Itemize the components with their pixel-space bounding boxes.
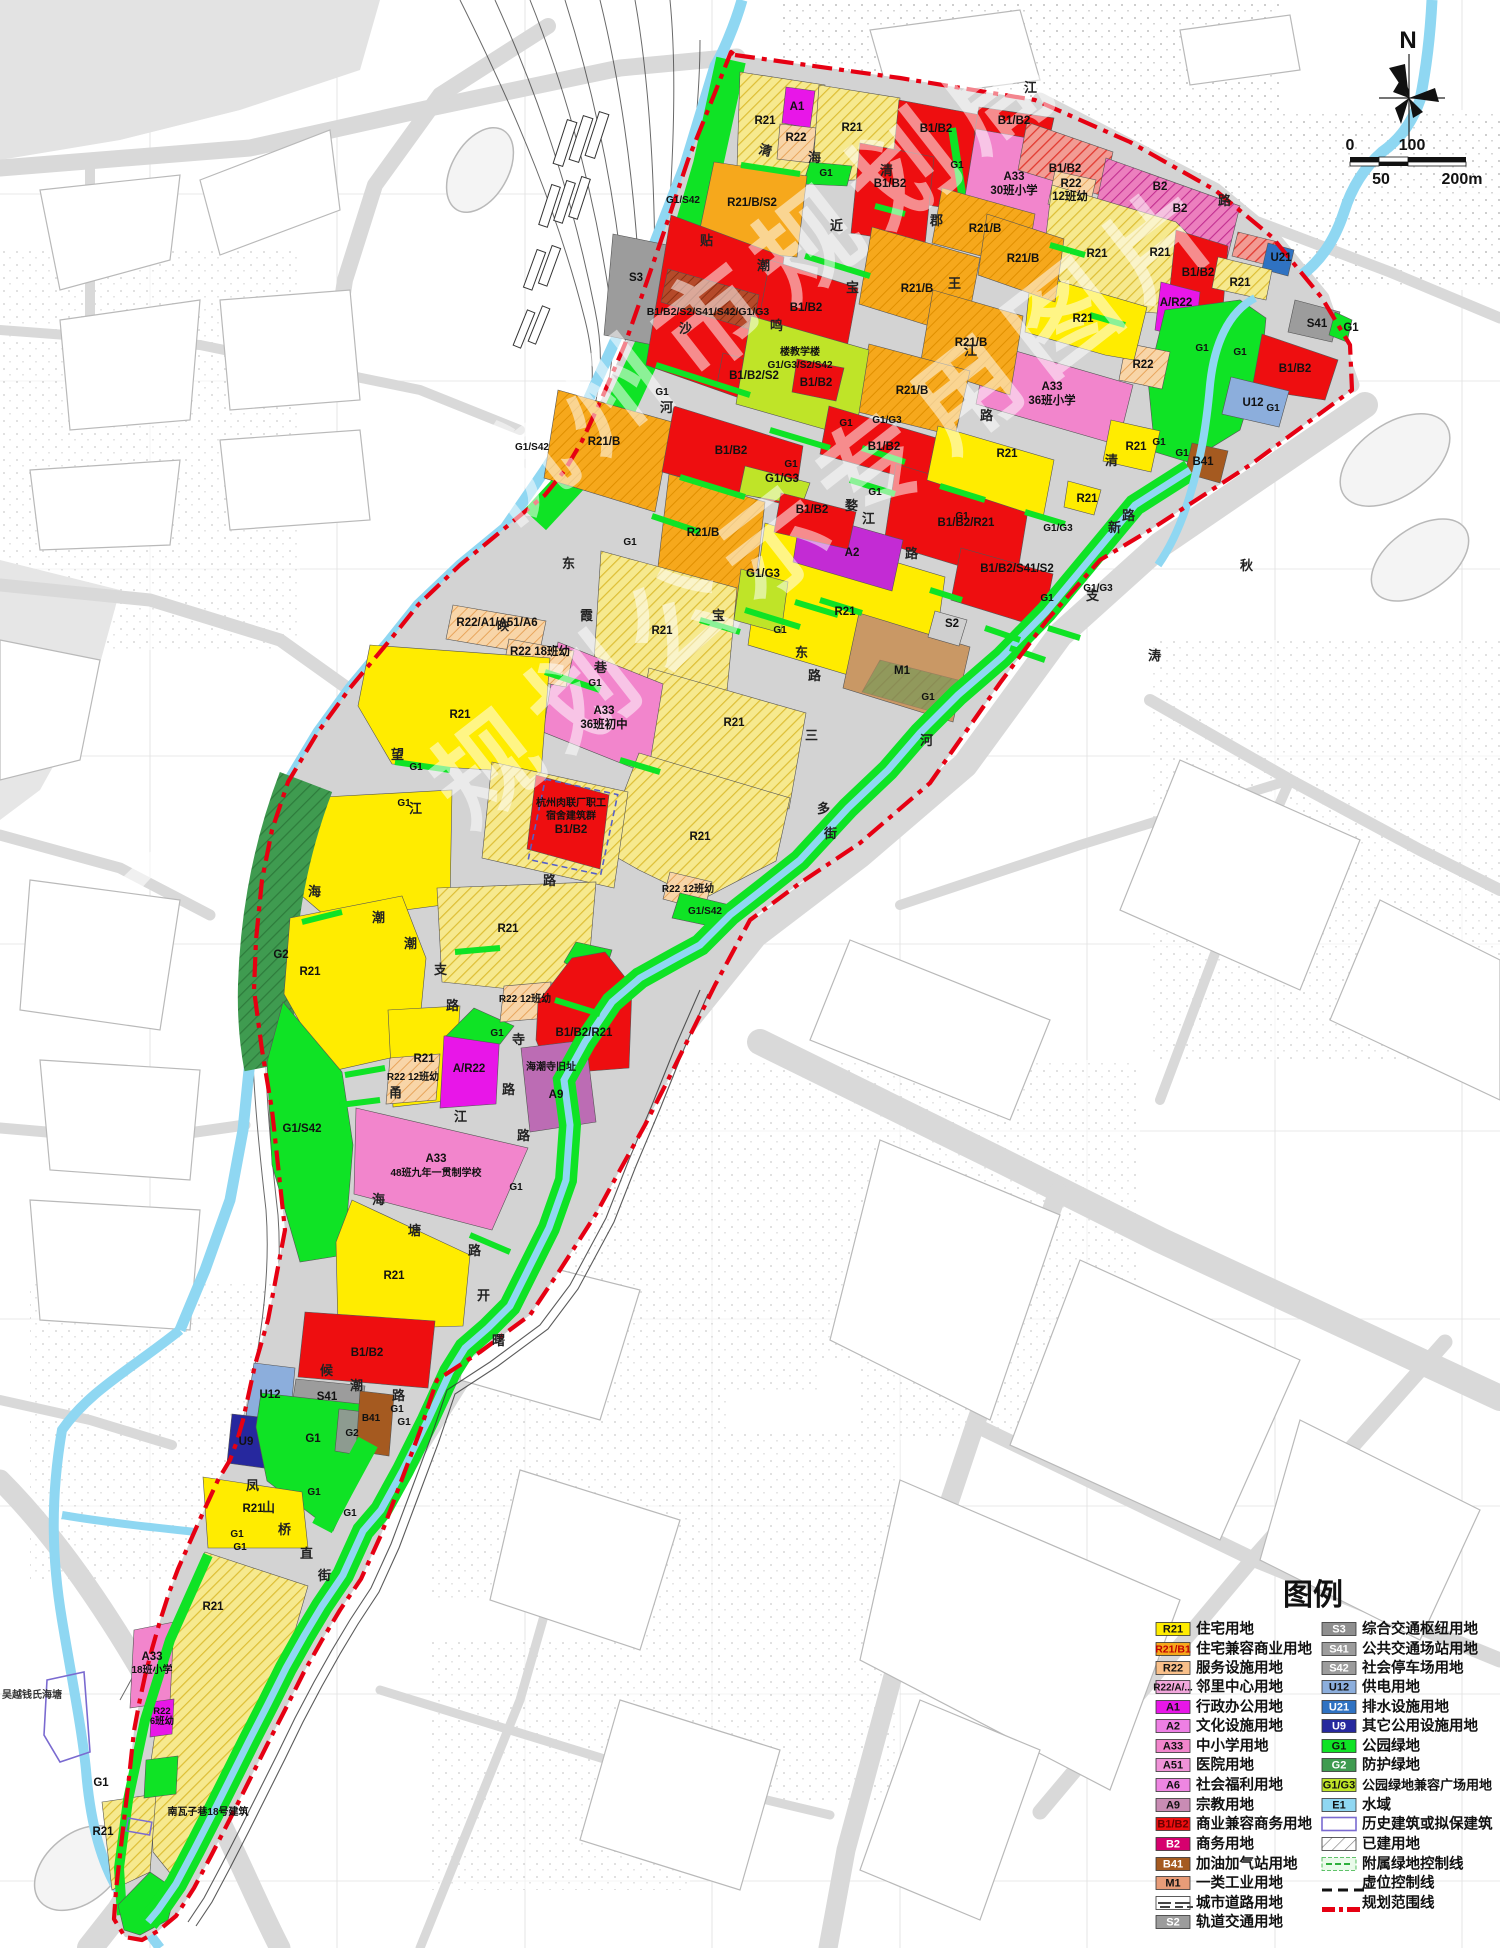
svg-text:婺: 婺	[844, 498, 859, 513]
svg-text:36班初中: 36班初中	[580, 717, 627, 731]
svg-text:清: 清	[880, 163, 893, 178]
svg-text:U21: U21	[1270, 252, 1292, 264]
svg-text:社会停车场用地: 社会停车场用地	[1361, 1659, 1464, 1677]
svg-text:30班小学: 30班小学	[990, 183, 1038, 197]
svg-text:R22 18班幼: R22 18班幼	[510, 644, 570, 658]
svg-text:涛: 涛	[1148, 648, 1161, 663]
svg-text:R21/B: R21/B	[687, 527, 720, 539]
svg-text:多: 多	[817, 801, 830, 816]
svg-text:江: 江	[1024, 80, 1037, 95]
svg-text:G2: G2	[345, 1428, 359, 1439]
svg-text:G1/S42: G1/S42	[688, 906, 722, 917]
svg-text:桥: 桥	[278, 1522, 292, 1537]
svg-text:G1: G1	[868, 487, 882, 498]
svg-text:G1: G1	[1266, 403, 1280, 414]
svg-text:100: 100	[1399, 137, 1426, 154]
svg-text:商业兼容商务用地: 商业兼容商务用地	[1196, 1815, 1312, 1833]
svg-text:住宅兼容商业用地: 住宅兼容商业用地	[1196, 1640, 1312, 1658]
svg-text:公园绿地兼容广场用地: 公园绿地兼容广场用地	[1362, 1778, 1492, 1793]
svg-text:U12: U12	[1329, 1682, 1349, 1694]
svg-text:G1/G3: G1/G3	[765, 473, 799, 485]
svg-text:6班幼: 6班幼	[150, 1715, 174, 1727]
svg-text:S2: S2	[945, 618, 959, 630]
svg-text:R22: R22	[785, 132, 806, 144]
svg-text:36班小学: 36班小学	[1028, 393, 1076, 407]
svg-text:A9: A9	[549, 1089, 564, 1101]
svg-text:塘: 塘	[408, 1223, 421, 1238]
svg-text:R21/B/S2: R21/B/S2	[727, 197, 777, 209]
svg-text:潮: 潮	[757, 258, 770, 273]
svg-text:A33: A33	[1163, 1741, 1183, 1753]
svg-text:R21: R21	[449, 709, 471, 721]
svg-text:G2: G2	[273, 949, 288, 961]
svg-text:路: 路	[1218, 193, 1232, 208]
svg-text:住宅用地: 住宅用地	[1196, 1620, 1254, 1638]
svg-text:R21/B: R21/B	[1007, 253, 1040, 265]
svg-text:A6: A6	[1166, 1780, 1180, 1792]
svg-text:R21: R21	[651, 625, 673, 637]
svg-text:R21: R21	[1163, 1624, 1183, 1636]
svg-text:排水设施用地: 排水设施用地	[1362, 1698, 1449, 1716]
svg-text:G1: G1	[839, 418, 853, 429]
svg-text:鸣: 鸣	[770, 318, 783, 333]
svg-text:R22: R22	[1132, 359, 1153, 371]
svg-text:霞: 霞	[580, 608, 594, 623]
svg-text:邻里中心用地: 邻里中心用地	[1196, 1678, 1283, 1696]
svg-text:G1/G3/S2/S42: G1/G3/S2/S42	[767, 360, 832, 371]
svg-text:R21: R21	[497, 923, 519, 935]
svg-text:行政办公用地: 行政办公用地	[1195, 1698, 1283, 1716]
svg-text:S3: S3	[629, 272, 643, 284]
svg-text:沙: 沙	[679, 321, 692, 336]
svg-text:A1: A1	[1166, 1702, 1180, 1714]
svg-text:G1: G1	[93, 1777, 109, 1789]
svg-text:G1: G1	[1175, 448, 1189, 459]
svg-text:12班幼: 12班幼	[1052, 189, 1088, 203]
svg-text:路: 路	[502, 1082, 516, 1097]
svg-text:路: 路	[543, 873, 557, 888]
svg-text:G1/G3: G1/G3	[872, 415, 902, 426]
svg-text:B41: B41	[362, 1413, 381, 1424]
svg-text:海: 海	[308, 884, 321, 899]
svg-text:G1/G3: G1/G3	[746, 568, 780, 580]
svg-text:东: 东	[562, 556, 575, 571]
svg-text:海潮寺旧址: 海潮寺旧址	[526, 1060, 576, 1073]
svg-text:A51: A51	[1163, 1760, 1183, 1772]
svg-text:虚位控制线: 虚位控制线	[1362, 1874, 1435, 1892]
svg-text:N: N	[1399, 27, 1416, 54]
svg-text:G1: G1	[230, 1529, 244, 1540]
svg-text:新: 新	[1108, 520, 1121, 535]
svg-text:寺: 寺	[512, 1032, 525, 1047]
svg-text:规划范围线: 规划范围线	[1362, 1894, 1435, 1912]
svg-text:A33: A33	[1041, 381, 1062, 393]
svg-text:G1: G1	[950, 160, 964, 171]
svg-text:东: 东	[795, 645, 808, 660]
svg-text:G1: G1	[1343, 322, 1359, 334]
svg-text:路: 路	[905, 546, 919, 561]
svg-text:G1: G1	[233, 1542, 247, 1553]
svg-text:U12: U12	[1242, 397, 1263, 409]
svg-text:S41: S41	[1329, 1644, 1349, 1656]
svg-text:巷: 巷	[593, 660, 608, 675]
svg-text:图例: 图例	[1283, 1579, 1343, 1612]
svg-text:B1/B2: B1/B2	[800, 377, 833, 389]
svg-text:0: 0	[1346, 137, 1355, 154]
svg-text:甬: 甬	[389, 1085, 402, 1100]
svg-text:B1/B2: B1/B2	[998, 115, 1031, 127]
svg-text:B41: B41	[1163, 1859, 1183, 1871]
svg-text:山: 山	[262, 1500, 275, 1515]
svg-text:路: 路	[980, 408, 994, 423]
svg-text:R21: R21	[1072, 313, 1094, 325]
svg-text:G1/G3: G1/G3	[1043, 523, 1073, 534]
svg-text:B2: B2	[1166, 1839, 1180, 1851]
svg-text:中小学用地: 中小学用地	[1196, 1737, 1269, 1755]
svg-text:B1/B2: B1/B2	[351, 1347, 384, 1359]
svg-text:G1: G1	[1233, 347, 1247, 358]
svg-text:B1/B2: B1/B2	[1157, 1819, 1188, 1831]
svg-text:文化设施用地: 文化设施用地	[1196, 1717, 1283, 1735]
svg-text:E1: E1	[1332, 1800, 1345, 1812]
svg-text:B1/B2: B1/B2	[790, 302, 823, 314]
svg-text:R22 12班幼: R22 12班幼	[662, 882, 714, 895]
svg-text:G1: G1	[1152, 437, 1166, 448]
svg-text:路: 路	[517, 1128, 531, 1143]
svg-text:B1/B2: B1/B2	[1182, 267, 1215, 279]
svg-text:商务用地: 商务用地	[1196, 1835, 1254, 1853]
svg-text:凤: 凤	[246, 1478, 259, 1493]
svg-text:江: 江	[454, 1109, 467, 1124]
svg-text:B1/B2: B1/B2	[1049, 163, 1082, 175]
svg-text:江: 江	[964, 343, 977, 358]
svg-text:G1: G1	[588, 678, 602, 689]
svg-text:G1: G1	[397, 1417, 411, 1428]
svg-text:B2: B2	[1153, 181, 1168, 193]
svg-text:R21: R21	[202, 1601, 224, 1613]
svg-text:贴: 贴	[700, 233, 713, 248]
svg-text:R21/B: R21/B	[901, 283, 934, 295]
svg-text:历史建筑或拟保建筑: 历史建筑或拟保建筑	[1362, 1815, 1493, 1833]
svg-text:G2: G2	[1332, 1760, 1347, 1772]
svg-text:B1/B2: B1/B2	[1279, 363, 1312, 375]
svg-text:杭州肉联厂职工: 杭州肉联厂职工	[536, 796, 606, 809]
svg-text:R21: R21	[723, 717, 745, 729]
svg-text:S41: S41	[1307, 318, 1328, 330]
svg-text:R21/B1: R21/B1	[1155, 1644, 1191, 1656]
svg-text:R21/B: R21/B	[588, 436, 621, 448]
svg-text:R21: R21	[242, 1503, 264, 1515]
svg-text:B1/B2: B1/B2	[796, 504, 829, 516]
svg-text:G1: G1	[409, 762, 423, 773]
svg-text:已建用地: 已建用地	[1362, 1835, 1420, 1853]
svg-text:江: 江	[409, 801, 422, 816]
svg-text:R22 12班幼: R22 12班幼	[387, 1070, 439, 1083]
svg-text:B1/B2/S41/S2: B1/B2/S41/S2	[980, 563, 1054, 575]
svg-text:水域: 水域	[1362, 1796, 1391, 1814]
svg-text:路: 路	[1122, 508, 1136, 523]
svg-text:G1: G1	[655, 387, 669, 398]
svg-text:G1: G1	[955, 511, 969, 522]
svg-text:宿舍建筑群: 宿舍建筑群	[546, 809, 596, 822]
svg-text:街: 街	[317, 1568, 331, 1583]
svg-text:A9: A9	[1166, 1800, 1180, 1812]
svg-text:S42: S42	[1329, 1663, 1349, 1675]
svg-text:三: 三	[805, 728, 818, 743]
svg-text:A1: A1	[790, 101, 805, 113]
svg-text:G1: G1	[1332, 1741, 1347, 1753]
svg-text:B1/B2: B1/B2	[920, 123, 953, 135]
svg-text:江: 江	[862, 511, 875, 526]
svg-text:R21: R21	[1086, 248, 1108, 260]
svg-text:宗教用地: 宗教用地	[1196, 1796, 1254, 1814]
svg-text:R21: R21	[996, 448, 1018, 460]
svg-text:南瓦子巷18号建筑: 南瓦子巷18号建筑	[167, 1805, 248, 1818]
svg-text:潮: 潮	[372, 910, 385, 925]
svg-text:候: 候	[320, 1363, 334, 1378]
svg-text:G1: G1	[1195, 343, 1209, 354]
svg-text:R21: R21	[1125, 441, 1147, 453]
svg-text:R21: R21	[383, 1270, 405, 1282]
svg-text:A2: A2	[845, 547, 860, 559]
svg-text:清: 清	[1105, 453, 1118, 468]
svg-text:R22 12班幼: R22 12班幼	[499, 992, 551, 1005]
svg-text:望: 望	[391, 747, 404, 762]
svg-text:海: 海	[372, 1192, 385, 1207]
svg-text:街: 街	[823, 826, 837, 841]
svg-text:G1: G1	[490, 1028, 504, 1039]
svg-text:轨道交通用地: 轨道交通用地	[1196, 1913, 1283, 1931]
svg-text:G1: G1	[343, 1508, 357, 1519]
svg-text:G1/S42: G1/S42	[283, 1123, 322, 1135]
svg-text:S3: S3	[1332, 1624, 1345, 1636]
svg-text:G1: G1	[623, 537, 637, 548]
svg-text:R21: R21	[1229, 277, 1251, 289]
svg-text:G1: G1	[921, 692, 935, 703]
svg-text:B1/B2: B1/B2	[874, 178, 907, 190]
svg-text:U21: U21	[1329, 1702, 1349, 1714]
svg-text:医院用地: 医院用地	[1196, 1756, 1254, 1774]
svg-text:城市道路用地: 城市道路用地	[1196, 1894, 1283, 1912]
svg-text:U12: U12	[259, 1389, 280, 1401]
svg-text:R21: R21	[299, 966, 321, 978]
svg-text:G1: G1	[1040, 593, 1054, 604]
svg-text:G1/S42: G1/S42	[515, 442, 549, 453]
svg-text:A/R22: A/R22	[1160, 297, 1193, 309]
svg-text:海: 海	[808, 150, 821, 165]
svg-text:200m: 200m	[1442, 171, 1483, 188]
svg-text:楼教学楼: 楼教学楼	[780, 345, 820, 358]
svg-text:R21/B: R21/B	[896, 385, 929, 397]
svg-text:潮: 潮	[350, 1378, 363, 1393]
svg-text:河: 河	[920, 733, 933, 748]
svg-text:潮: 潮	[404, 936, 417, 951]
svg-text:王: 王	[948, 276, 961, 291]
svg-text:B1/B2/S2: B1/B2/S2	[729, 370, 779, 382]
svg-text:B1/B2/S2/S41/S42/G1/G3: B1/B2/S2/S41/S42/G1/G3	[647, 306, 770, 318]
svg-text:映: 映	[497, 618, 510, 633]
svg-text:48班九年一贯制学校: 48班九年一贯制学校	[390, 1166, 482, 1179]
svg-text:河: 河	[660, 400, 673, 415]
svg-text:供电用地: 供电用地	[1361, 1678, 1420, 1696]
svg-text:路: 路	[808, 668, 822, 683]
svg-text:M1: M1	[1165, 1878, 1180, 1890]
svg-text:A33: A33	[1003, 171, 1024, 183]
svg-text:R21: R21	[841, 122, 863, 134]
svg-text:路: 路	[392, 1388, 406, 1403]
svg-text:直: 直	[300, 1546, 313, 1561]
svg-text:路: 路	[468, 1243, 482, 1258]
svg-text:B1/B2: B1/B2	[715, 445, 748, 457]
svg-text:S2: S2	[1166, 1917, 1179, 1929]
svg-text:G1/G3: G1/G3	[1323, 1780, 1355, 1792]
svg-text:支: 支	[1085, 588, 1100, 603]
svg-text:秋: 秋	[1240, 558, 1254, 573]
svg-text:R21: R21	[1076, 493, 1098, 505]
svg-text:社会福利用地: 社会福利用地	[1195, 1776, 1283, 1794]
svg-text:综合交通枢纽用地: 综合交通枢纽用地	[1362, 1620, 1478, 1638]
svg-text:R22/A/...: R22/A/...	[1153, 1683, 1193, 1694]
svg-text:R21: R21	[754, 115, 776, 127]
svg-text:B1/B2/R21: B1/B2/R21	[556, 1027, 613, 1039]
svg-text:M1: M1	[894, 665, 911, 677]
svg-text:G1: G1	[305, 1433, 321, 1445]
svg-text:宝: 宝	[712, 608, 725, 623]
svg-text:R21: R21	[689, 831, 711, 843]
svg-text:G1: G1	[509, 1182, 523, 1193]
svg-text:A2: A2	[1166, 1721, 1180, 1733]
svg-text:G1: G1	[819, 168, 833, 179]
svg-text:G1: G1	[307, 1487, 321, 1498]
svg-text:B2: B2	[1173, 203, 1188, 215]
svg-text:加油加气站用地: 加油加气站用地	[1195, 1855, 1298, 1873]
svg-text:A/R22: A/R22	[453, 1063, 486, 1075]
svg-text:开: 开	[477, 1288, 490, 1303]
svg-text:宝: 宝	[846, 280, 859, 295]
svg-text:曙: 曙	[492, 1333, 505, 1348]
svg-text:服务设施用地: 服务设施用地	[1196, 1659, 1283, 1677]
svg-text:G1: G1	[390, 1404, 404, 1415]
svg-text:A33: A33	[425, 1153, 446, 1165]
svg-text:B1/B2: B1/B2	[555, 824, 588, 836]
svg-text:G1: G1	[773, 625, 787, 636]
svg-text:R21: R21	[92, 1826, 114, 1838]
svg-text:近: 近	[830, 218, 843, 233]
svg-text:A33: A33	[593, 705, 614, 717]
svg-text:路: 路	[446, 998, 460, 1013]
svg-text:18班小学: 18班小学	[131, 1663, 172, 1676]
svg-text:R21: R21	[413, 1053, 435, 1065]
svg-text:U9: U9	[1332, 1721, 1346, 1733]
svg-text:公共交通场站用地: 公共交通场站用地	[1362, 1640, 1478, 1658]
svg-text:吴越钱氏海塘: 吴越钱氏海塘	[2, 1688, 62, 1701]
svg-text:R21: R21	[834, 606, 856, 618]
svg-text:附属绿地控制线: 附属绿地控制线	[1362, 1855, 1464, 1873]
svg-text:R22: R22	[1060, 178, 1081, 190]
svg-text:A33: A33	[141, 1651, 162, 1663]
svg-text:R21/B: R21/B	[969, 223, 1002, 235]
svg-text:公园绿地: 公园绿地	[1362, 1737, 1420, 1755]
svg-text:防护绿地: 防护绿地	[1362, 1756, 1420, 1774]
svg-text:郡: 郡	[929, 213, 943, 228]
svg-text:R22: R22	[1163, 1663, 1183, 1675]
svg-text:S41: S41	[317, 1391, 338, 1403]
svg-text:一类工业用地: 一类工业用地	[1196, 1874, 1283, 1892]
svg-text:U9: U9	[239, 1436, 254, 1448]
svg-text:G1/S42: G1/S42	[666, 195, 700, 206]
svg-text:支: 支	[433, 962, 448, 977]
svg-text:B1/B2: B1/B2	[868, 441, 901, 453]
svg-text:50: 50	[1372, 171, 1390, 188]
svg-text:B41: B41	[1192, 456, 1214, 468]
svg-text:G1: G1	[784, 459, 798, 470]
svg-text:R21: R21	[1149, 247, 1171, 259]
svg-text:其它公用设施用地: 其它公用设施用地	[1362, 1717, 1478, 1735]
